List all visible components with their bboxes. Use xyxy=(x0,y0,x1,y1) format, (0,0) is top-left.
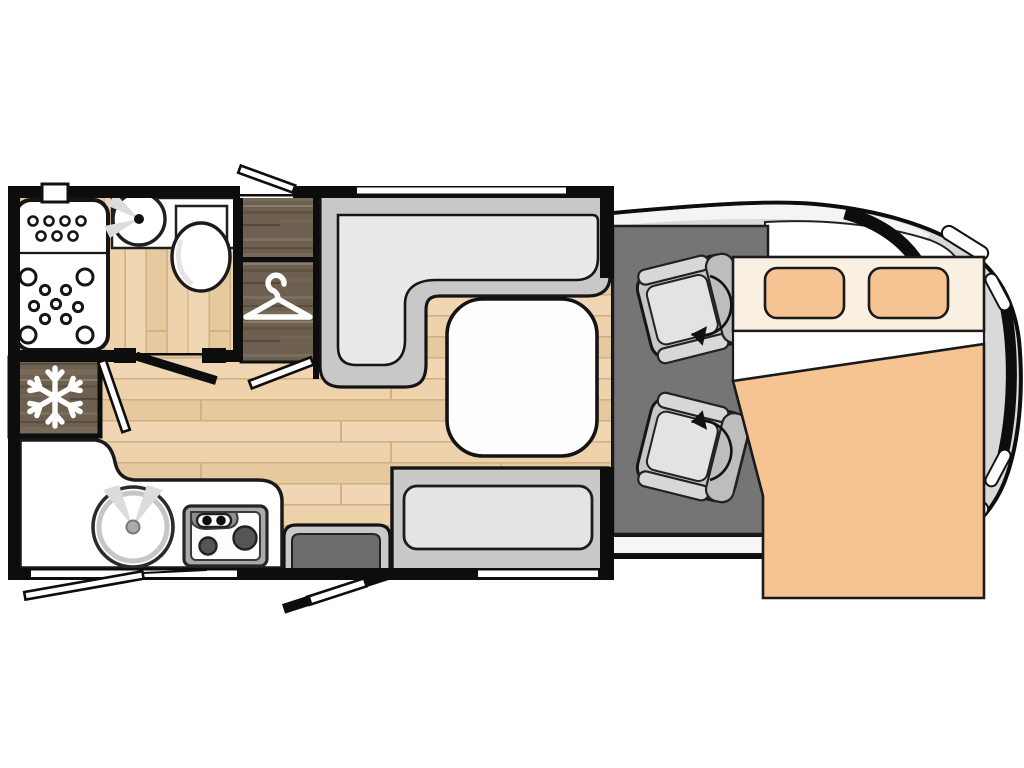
kitchen-sink xyxy=(93,485,173,567)
wall-right-upper xyxy=(600,186,614,278)
pillow xyxy=(765,268,844,318)
floorplan-canvas xyxy=(0,0,1024,768)
door-post xyxy=(202,348,226,363)
burner-icon xyxy=(234,527,257,550)
overcab-bed xyxy=(733,257,984,598)
toilet xyxy=(172,206,230,291)
burner-icon xyxy=(200,538,217,555)
window-sill-line xyxy=(240,194,293,197)
wardrobe-shelf-line xyxy=(241,257,315,262)
entry-step xyxy=(284,525,390,573)
window-bottom-right xyxy=(478,571,598,578)
pillow xyxy=(869,268,948,318)
dinette-table xyxy=(447,299,597,456)
wall-right-lower xyxy=(600,467,614,580)
van-sill xyxy=(613,536,763,554)
partition-wardrobe xyxy=(313,194,319,379)
fridge-block xyxy=(10,358,100,436)
partition-bathroom xyxy=(233,194,243,360)
drain-icon xyxy=(134,214,144,224)
wardrobe-cabinet xyxy=(241,196,315,362)
wall-left xyxy=(8,186,20,580)
kitchen-hob xyxy=(184,506,267,566)
hob-controls xyxy=(197,514,231,527)
wardrobe-block xyxy=(241,196,315,362)
shower-tray xyxy=(16,200,108,350)
bench-cushion xyxy=(404,486,592,549)
door-post xyxy=(114,348,136,363)
wall-bathroom-b xyxy=(224,350,243,362)
bed-duvet xyxy=(733,344,984,598)
faucet-icon xyxy=(127,521,140,534)
motorhome-floorplan xyxy=(0,0,1024,768)
roof-vent xyxy=(42,184,68,202)
window-top xyxy=(357,188,566,194)
bench-seat xyxy=(392,468,608,574)
